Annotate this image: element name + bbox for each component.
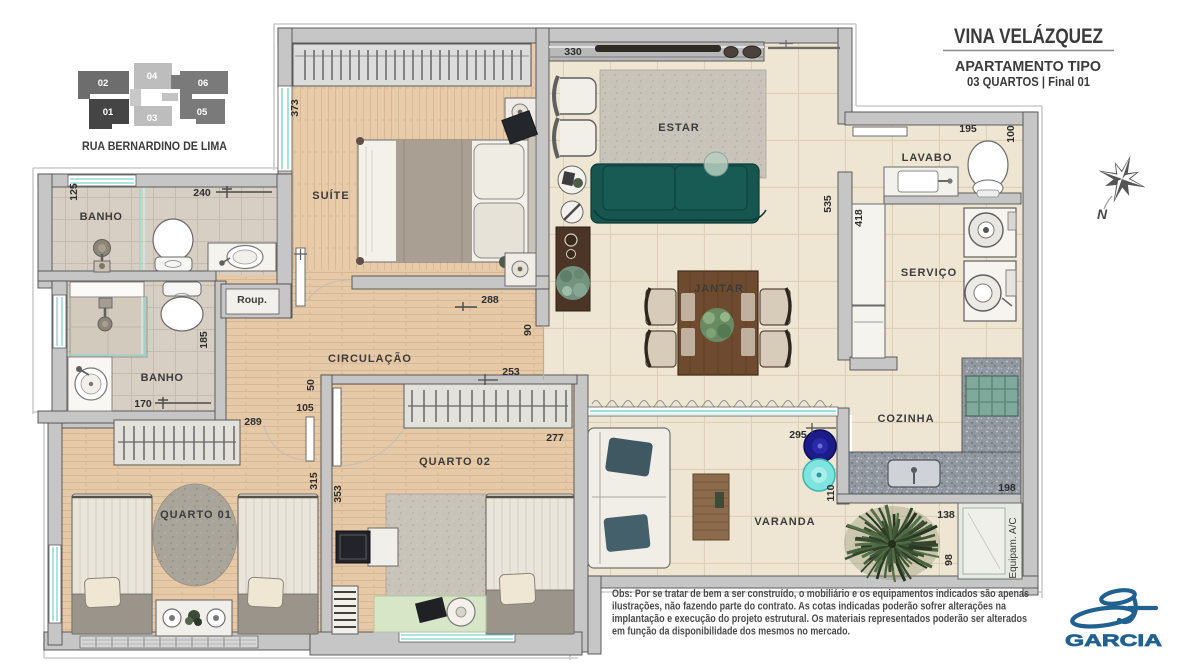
svg-text:353: 353 — [332, 485, 344, 503]
svg-text:COZINHA: COZINHA — [877, 413, 934, 425]
svg-text:GARCIA: GARCIA — [1065, 632, 1162, 650]
svg-text:04: 04 — [147, 71, 158, 82]
svg-text:QUARTO 01: QUARTO 01 — [160, 509, 232, 521]
svg-text:125: 125 — [68, 183, 80, 201]
svg-text:240: 240 — [193, 187, 211, 199]
svg-text:98: 98 — [943, 554, 955, 566]
svg-text:RUA BERNARDINO DE LIMA: RUA BERNARDINO DE LIMA — [82, 141, 227, 153]
svg-text:APARTAMENTO TIPO: APARTAMENTO TIPO — [955, 58, 1101, 75]
svg-text:289: 289 — [244, 416, 262, 428]
svg-text:QUARTO 02: QUARTO 02 — [419, 456, 491, 468]
svg-text:50: 50 — [305, 379, 317, 391]
svg-text:VARANDA: VARANDA — [754, 516, 815, 528]
svg-text:Roup.: Roup. — [237, 294, 267, 306]
svg-text:170: 170 — [134, 398, 152, 410]
svg-text:06: 06 — [198, 78, 209, 89]
svg-text:105: 105 — [296, 402, 314, 414]
svg-text:90: 90 — [522, 324, 534, 336]
svg-text:253: 253 — [502, 366, 520, 378]
svg-text:implantação e execução do proj: implantação e execução do projeto estrut… — [612, 613, 1027, 625]
svg-text:05: 05 — [197, 107, 208, 118]
svg-text:CIRCULAÇÃO: CIRCULAÇÃO — [328, 352, 412, 365]
svg-text:195: 195 — [959, 123, 977, 135]
svg-text:100: 100 — [1005, 125, 1017, 143]
svg-text:JANTAR: JANTAR — [694, 283, 744, 295]
svg-text:01: 01 — [103, 107, 114, 118]
svg-text:N: N — [1097, 206, 1108, 222]
svg-text:03 QUARTOS | Final 01: 03 QUARTOS | Final 01 — [967, 75, 1090, 89]
svg-text:110: 110 — [825, 484, 837, 501]
svg-text:185: 185 — [198, 331, 210, 349]
svg-text:198: 198 — [998, 482, 1016, 494]
svg-text:295: 295 — [789, 429, 807, 441]
svg-text:138: 138 — [937, 509, 955, 521]
svg-text:315: 315 — [308, 472, 320, 490]
svg-text:373: 373 — [289, 99, 301, 117]
svg-text:Equipam. A/C: Equipam. A/C — [1008, 517, 1019, 578]
svg-text:02: 02 — [98, 78, 109, 89]
svg-text:277: 277 — [546, 432, 564, 444]
svg-text:BANHO: BANHO — [80, 211, 123, 223]
svg-text:ilustrações, não fazendo parte: ilustrações, não fazendo parte do contra… — [612, 601, 1007, 613]
svg-text:418: 418 — [853, 209, 865, 227]
svg-text:330: 330 — [564, 46, 582, 58]
svg-text:ESTAR: ESTAR — [658, 122, 699, 134]
svg-text:BANHO: BANHO — [141, 372, 184, 384]
svg-text:288: 288 — [481, 294, 499, 306]
svg-text:em função da disponibilidade d: em função da disponibilidade dos mesmos … — [612, 626, 850, 638]
svg-text:03: 03 — [147, 113, 158, 124]
svg-text:LAVABO: LAVABO — [902, 152, 953, 164]
svg-text:SERVIÇO: SERVIÇO — [901, 267, 957, 279]
svg-text:535: 535 — [822, 195, 834, 213]
svg-text:SUÍTE: SUÍTE — [312, 189, 349, 202]
svg-text:Obs: Por se tratar de bem a se: Obs: Por se tratar de bem a ser construí… — [612, 588, 1029, 600]
svg-text:VINA VELÁZQUEZ: VINA VELÁZQUEZ — [954, 25, 1103, 48]
